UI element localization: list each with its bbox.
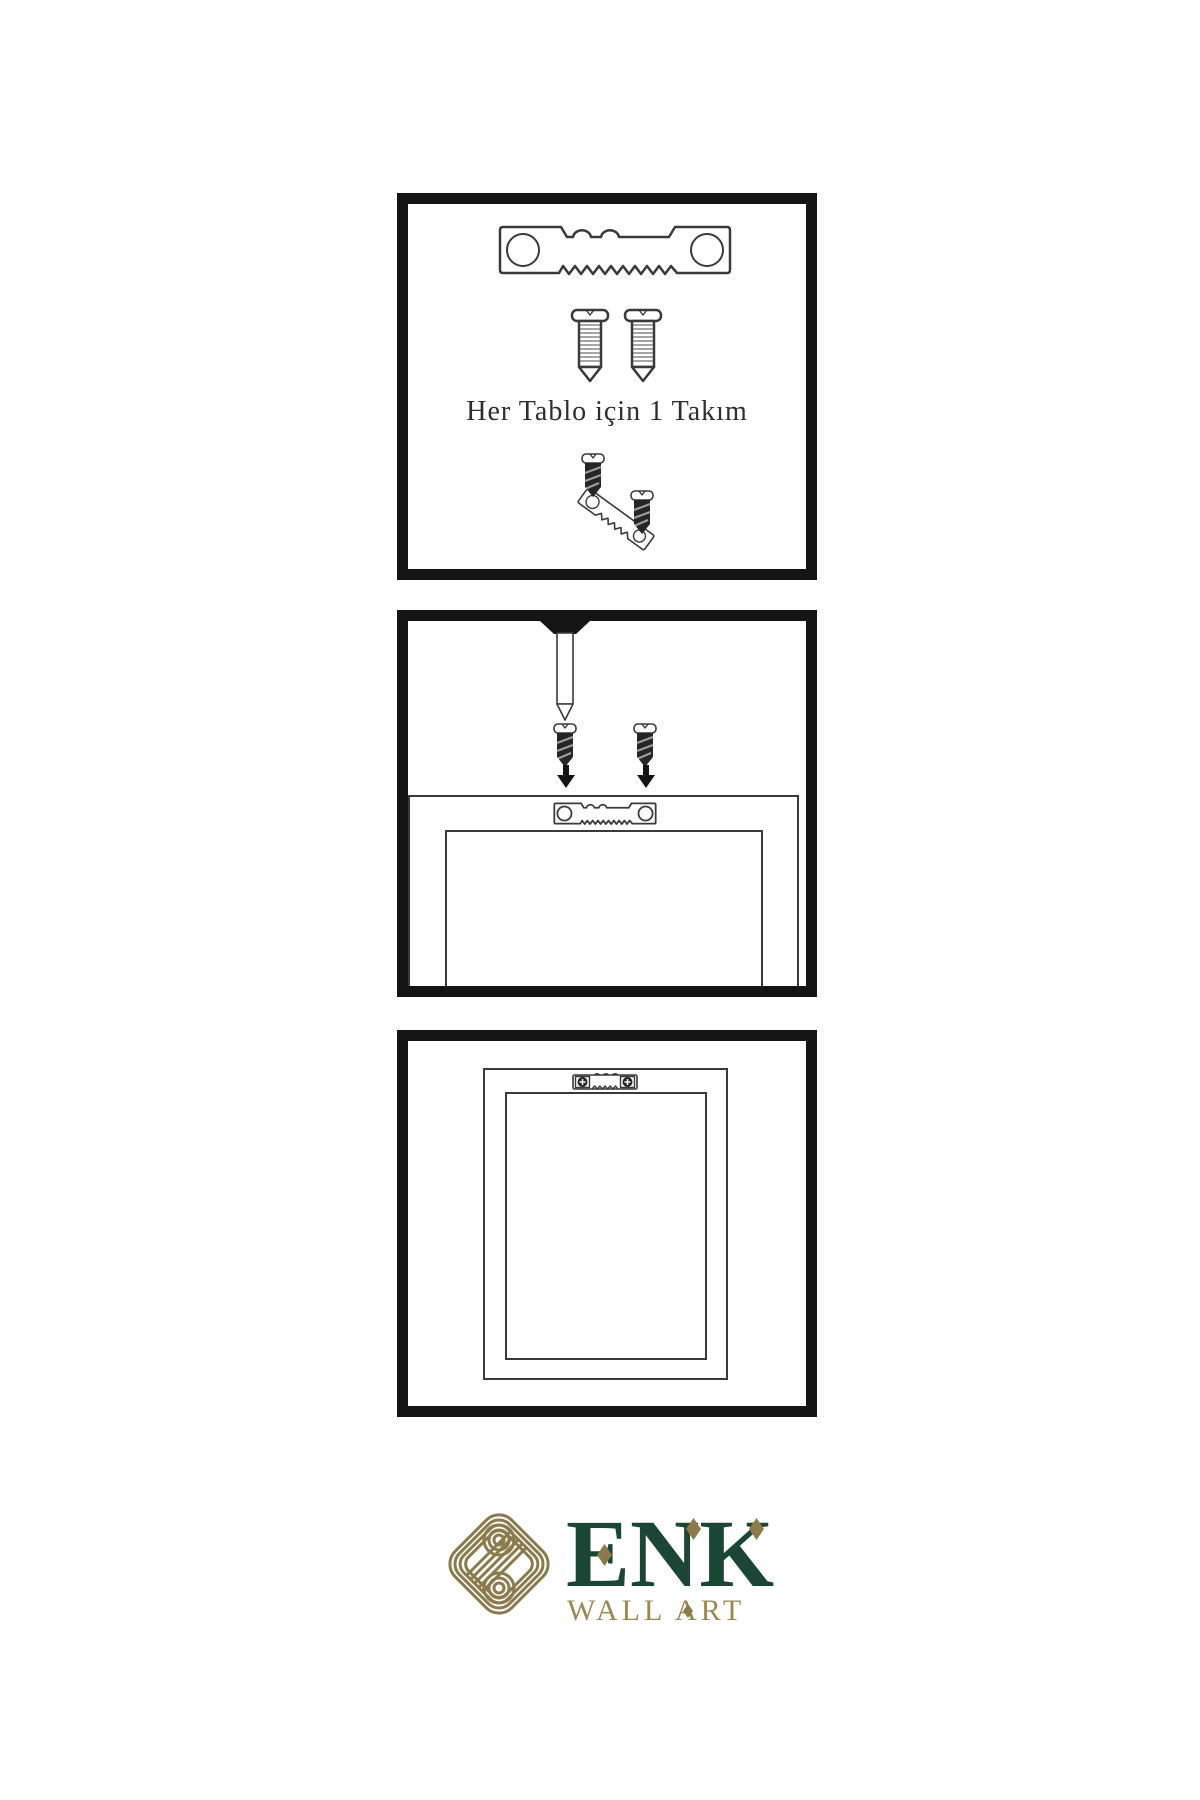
- step-2-panel: [397, 610, 817, 997]
- sawtooth-hanger-screwed-icon: [572, 1072, 638, 1092]
- small-screw-icon: [630, 490, 654, 536]
- instruction-sheet: Her Tablo için 1 Takım: [0, 0, 1200, 1800]
- frame-inner: [505, 1092, 707, 1360]
- wallart-text: WALL ART: [567, 1594, 745, 1628]
- nail-icon: [540, 621, 590, 721]
- step-1-panel: Her Tablo için 1 Takım: [397, 193, 817, 580]
- screw-icon: [623, 305, 663, 383]
- frame-inner: [445, 830, 763, 986]
- arrow-down-icon: [636, 765, 656, 789]
- brand-text: ENK: [566, 1506, 774, 1602]
- small-screw-icon: [581, 453, 605, 499]
- step-3-panel: [397, 1030, 817, 1417]
- small-screw-icon: [633, 723, 657, 769]
- small-screw-icon: [553, 723, 577, 769]
- sawtooth-hanger-icon: [553, 801, 657, 826]
- arrow-down-icon: [556, 765, 576, 789]
- kit-caption: Her Tablo için 1 Takım: [408, 396, 806, 428]
- knot-logo-icon: [440, 1500, 558, 1628]
- screw-icon: [570, 305, 610, 383]
- sawtooth-hanger-icon: [497, 223, 733, 277]
